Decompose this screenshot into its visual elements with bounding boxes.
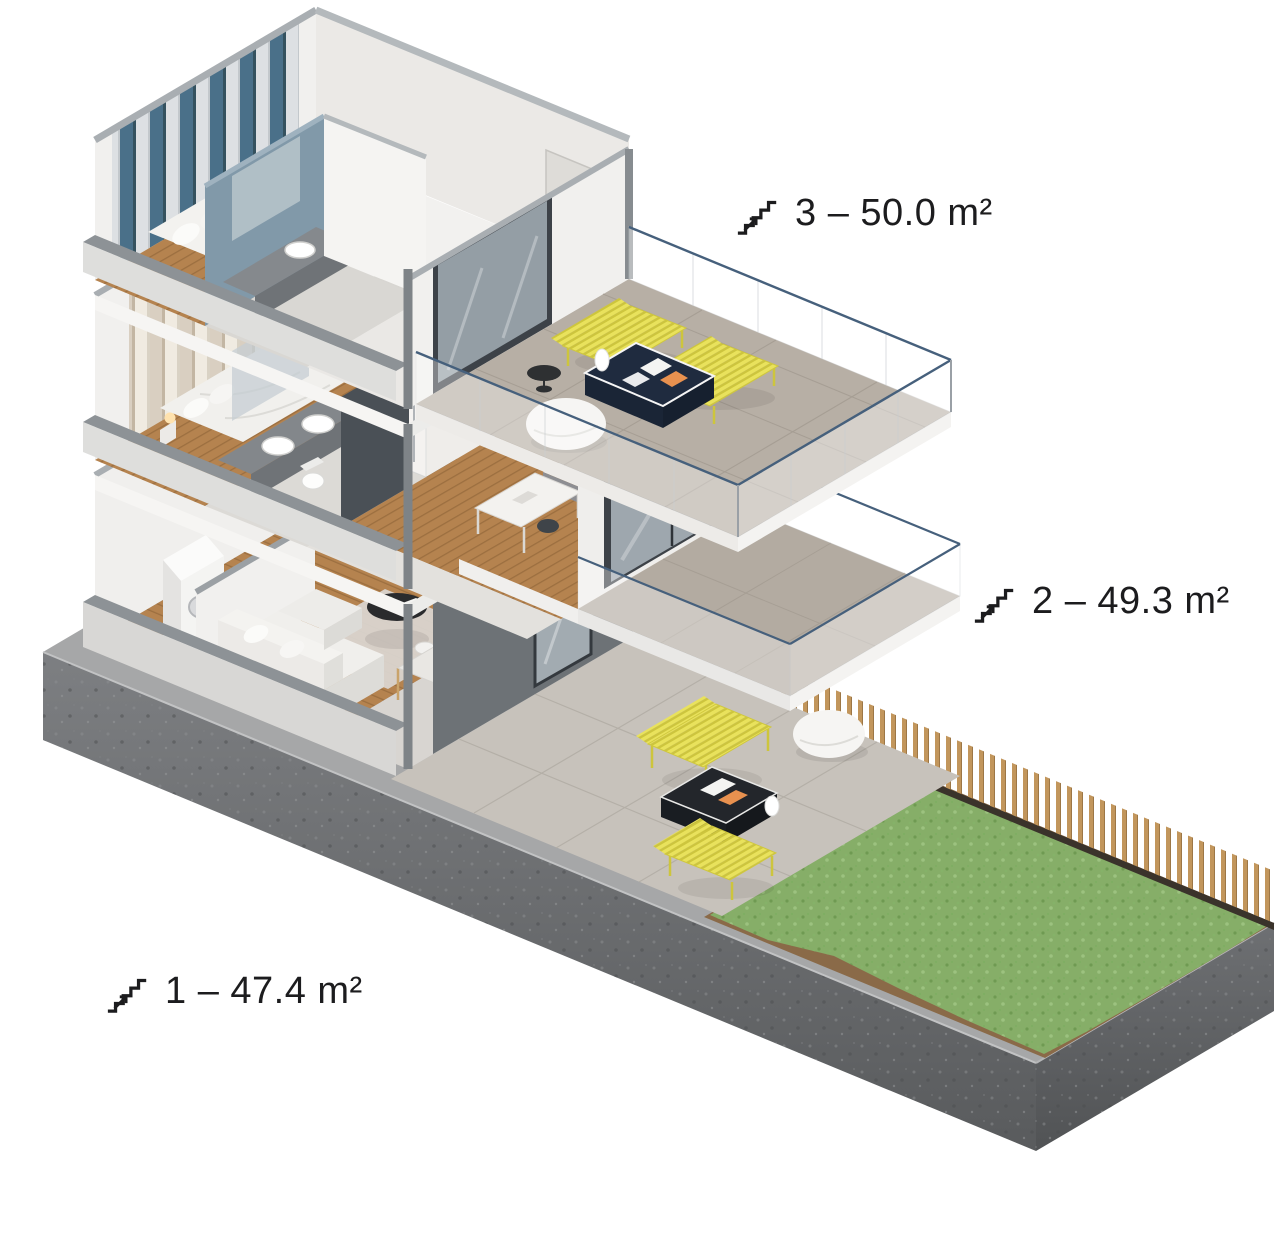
floor-2-label[interactable]: 2 – 49.3 m² (972, 578, 1230, 624)
bedside-lamp (165, 413, 176, 424)
sink (262, 437, 294, 455)
stairs-icon (735, 190, 781, 236)
stairs-icon (972, 578, 1018, 624)
sink (302, 415, 334, 433)
sink (285, 242, 315, 258)
pitcher (765, 796, 779, 816)
floor-2-area-text: 2 – 49.3 m² (1032, 580, 1230, 623)
floor-3-area-text: 3 – 50.0 m² (795, 192, 993, 235)
floor-3-label[interactable]: 3 – 50.0 m² (735, 190, 993, 236)
apartment-cutaway-scene: 3 – 50.0 m² 2 – 49.3 m² 1 – 47.4 m² (0, 0, 1280, 1258)
stairs-icon (105, 968, 151, 1014)
toilet (302, 473, 324, 489)
floor-1-area-text: 1 – 47.4 m² (165, 970, 363, 1013)
desk-chair (537, 519, 559, 533)
building-cutaway-render (0, 0, 1280, 1258)
vase (595, 349, 609, 371)
floor-1-label[interactable]: 1 – 47.4 m² (105, 968, 363, 1014)
